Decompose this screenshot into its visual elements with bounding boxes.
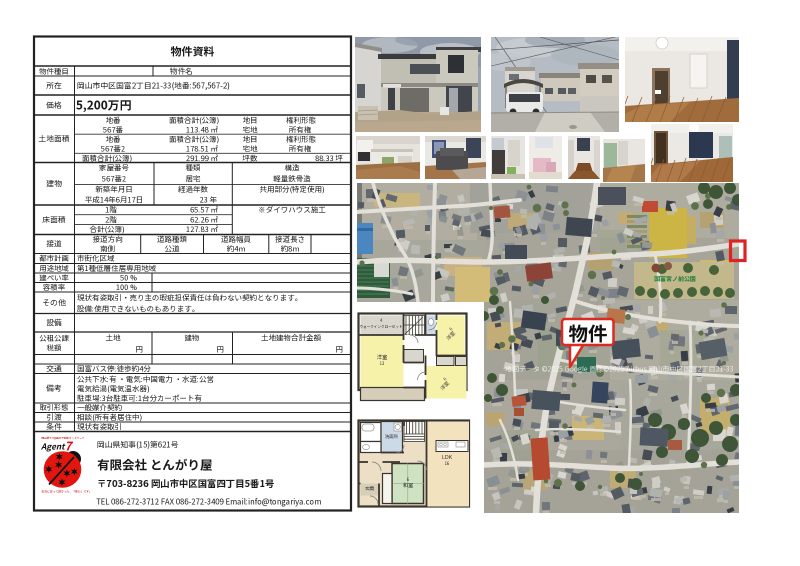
svg-text:物件種目: 物件種目 xyxy=(38,66,69,77)
svg-text:Agent: Agent xyxy=(40,441,66,453)
svg-text:経過年数: 経過年数 xyxy=(178,184,208,195)
svg-text:所有権: 所有権 xyxy=(289,143,312,154)
svg-text:地図データ ©2025 Google 画像©2025 Air: 地図データ ©2025 Google 画像©2025 Airbus 岡山市中区国… xyxy=(505,365,733,375)
svg-text:567番2: 567番2 xyxy=(102,174,127,185)
svg-text:100 %: 100 % xyxy=(116,282,137,293)
svg-text:設備:使用できないものもあります。: 設備:使用できないものもあります。 xyxy=(77,303,199,314)
svg-text:土地: 土地 xyxy=(106,333,121,344)
svg-text:居宅: 居宅 xyxy=(186,174,201,185)
svg-text:軽量鉄骨造: 軽量鉄骨造 xyxy=(273,174,311,185)
svg-text:税額: 税額 xyxy=(46,343,62,354)
svg-text:新築年月日: 新築年月日 xyxy=(95,184,133,195)
svg-text:土地面積: 土地面積 xyxy=(38,134,69,145)
svg-text:接道: 接道 xyxy=(46,239,62,250)
svg-text:有限会社 とんがり屋: 有限会社 とんがり屋 xyxy=(97,455,213,474)
svg-text:共用部分(特定使用): 共用部分(特定使用) xyxy=(259,184,324,195)
svg-text:岡山県下7店舗の不動産ネットワーク: 岡山県下7店舗の不動産ネットワーク xyxy=(42,436,85,440)
svg-text:その他: その他 xyxy=(42,298,66,309)
svg-text:ウォークインクローゼット: ウォークインクローゼット xyxy=(359,324,403,330)
svg-text:土地建物合計金額: 土地建物合計金額 xyxy=(261,333,321,344)
svg-text:構造: 構造 xyxy=(285,163,300,174)
svg-text:約4m: 約4m xyxy=(226,244,246,255)
svg-text:第1種低層住居専用地域: 第1種低層住居専用地域 xyxy=(77,263,157,274)
svg-text:〒703-8236 岡山市中区国富四丁目5番1号: 〒703-8236 岡山市中区国富四丁目5番1号 xyxy=(97,476,274,490)
svg-text:※ダイワハウス施工: ※ダイワハウス施工 xyxy=(258,205,326,216)
svg-text:TEL 086-272-3712 FAX 086-272-3: TEL 086-272-3712 FAX 086-272-3409 Email:… xyxy=(96,497,322,508)
svg-text:洋室: 洋室 xyxy=(377,354,388,361)
svg-text:建物: 建物 xyxy=(45,179,62,190)
svg-text:5,200万円: 5,200万円 xyxy=(76,97,131,114)
svg-text:洗面所: 洗面所 xyxy=(385,434,399,440)
svg-text:円: 円 xyxy=(336,344,344,355)
svg-text:円: 円 xyxy=(217,344,225,355)
svg-text:条件: 条件 xyxy=(45,422,62,433)
svg-text:和室: 和室 xyxy=(403,482,413,489)
svg-text:88.33 坪: 88.33 坪 xyxy=(315,153,343,164)
svg-text:13: 13 xyxy=(380,361,385,367)
svg-text:約8m: 約8m xyxy=(280,244,300,255)
svg-text:円: 円 xyxy=(136,344,144,355)
svg-text:16: 16 xyxy=(445,461,450,467)
svg-text:家屋番号: 家屋番号 xyxy=(99,163,129,174)
svg-text:建物: 建物 xyxy=(185,333,200,344)
svg-text:物件: 物件 xyxy=(568,318,608,347)
svg-text:岡山市中区国富2丁目21-33(地番:567,567-2): 岡山市中区国富2丁目21-33(地番:567,567-2) xyxy=(77,81,230,92)
svg-text:備考: 備考 xyxy=(46,383,62,394)
svg-text:LDK: LDK xyxy=(442,453,453,461)
svg-text:床面積: 床面積 xyxy=(42,215,66,226)
svg-text:設備: 設備 xyxy=(46,317,62,328)
svg-text:容積率: 容積率 xyxy=(43,282,66,293)
svg-text:国富宮ノ前公園: 国富宮ノ前公園 xyxy=(654,274,696,283)
svg-text:坪数: 坪数 xyxy=(243,153,258,164)
svg-text:物件名: 物件名 xyxy=(169,66,193,77)
svg-text:所在: 所在 xyxy=(46,81,62,92)
svg-text:種類: 種類 xyxy=(185,163,201,174)
svg-text:127.83 ㎡: 127.83 ㎡ xyxy=(186,224,219,235)
svg-text:本当に買って良かった、「安心」です。: 本当に買って良かった、「安心」です。 xyxy=(41,490,92,494)
svg-text:公道: 公道 xyxy=(165,244,180,255)
svg-text:交通: 交通 xyxy=(46,364,62,375)
svg-text:価格: 価格 xyxy=(46,100,62,111)
svg-text:現状有姿取引・売り主の瑕疵担保責任は負わない契約となります。: 現状有姿取引・売り主の瑕疵担保責任は負わない契約となります。 xyxy=(77,293,302,304)
svg-text:岡山県知事(15)第621号: 岡山県知事(15)第621号 xyxy=(97,440,179,451)
svg-text:玄関: 玄関 xyxy=(365,486,374,492)
svg-text:物件資料: 物件資料 xyxy=(170,44,215,60)
svg-text:現状有姿取引: 現状有姿取引 xyxy=(77,422,122,433)
